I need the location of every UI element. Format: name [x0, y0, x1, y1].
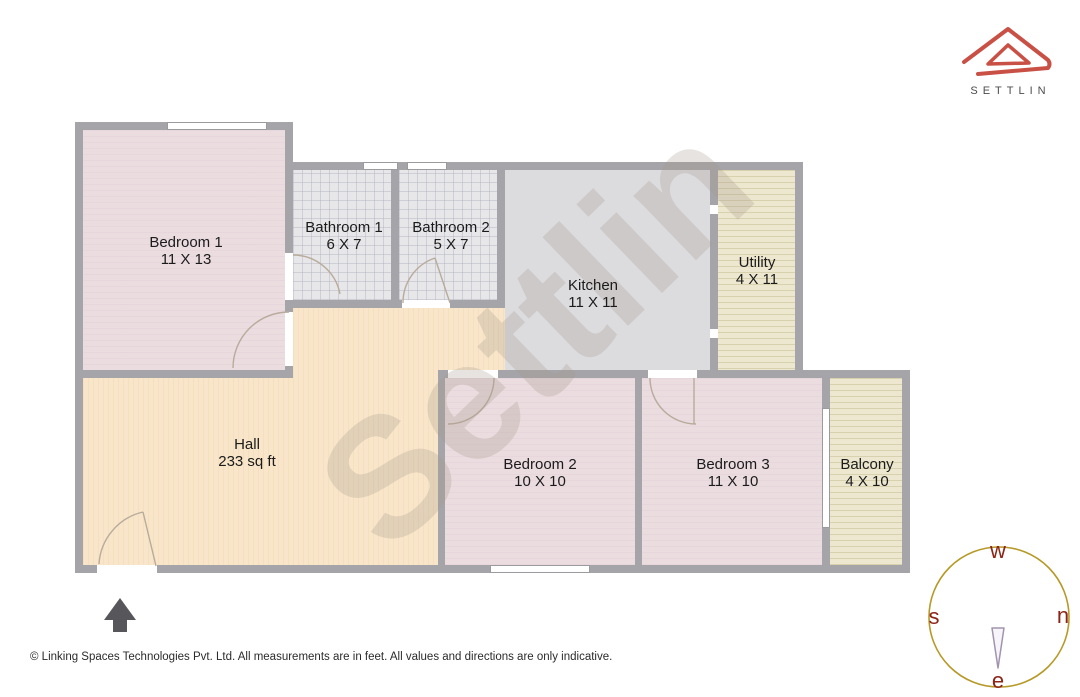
copyright-note: © Linking Spaces Technologies Pvt. Ltd. … — [30, 651, 612, 663]
compass-north-label: n — [1057, 605, 1069, 627]
compass-east-label: e — [992, 670, 1004, 692]
compass-west-label: w — [990, 540, 1006, 562]
floor-plan-page: Settlin Bedroom 1 11 X 13 Bathroom 1 6 X… — [0, 0, 1080, 697]
compass-icon — [0, 0, 1080, 697]
compass-south-label: s — [929, 606, 940, 628]
compass-needle — [992, 628, 1004, 668]
